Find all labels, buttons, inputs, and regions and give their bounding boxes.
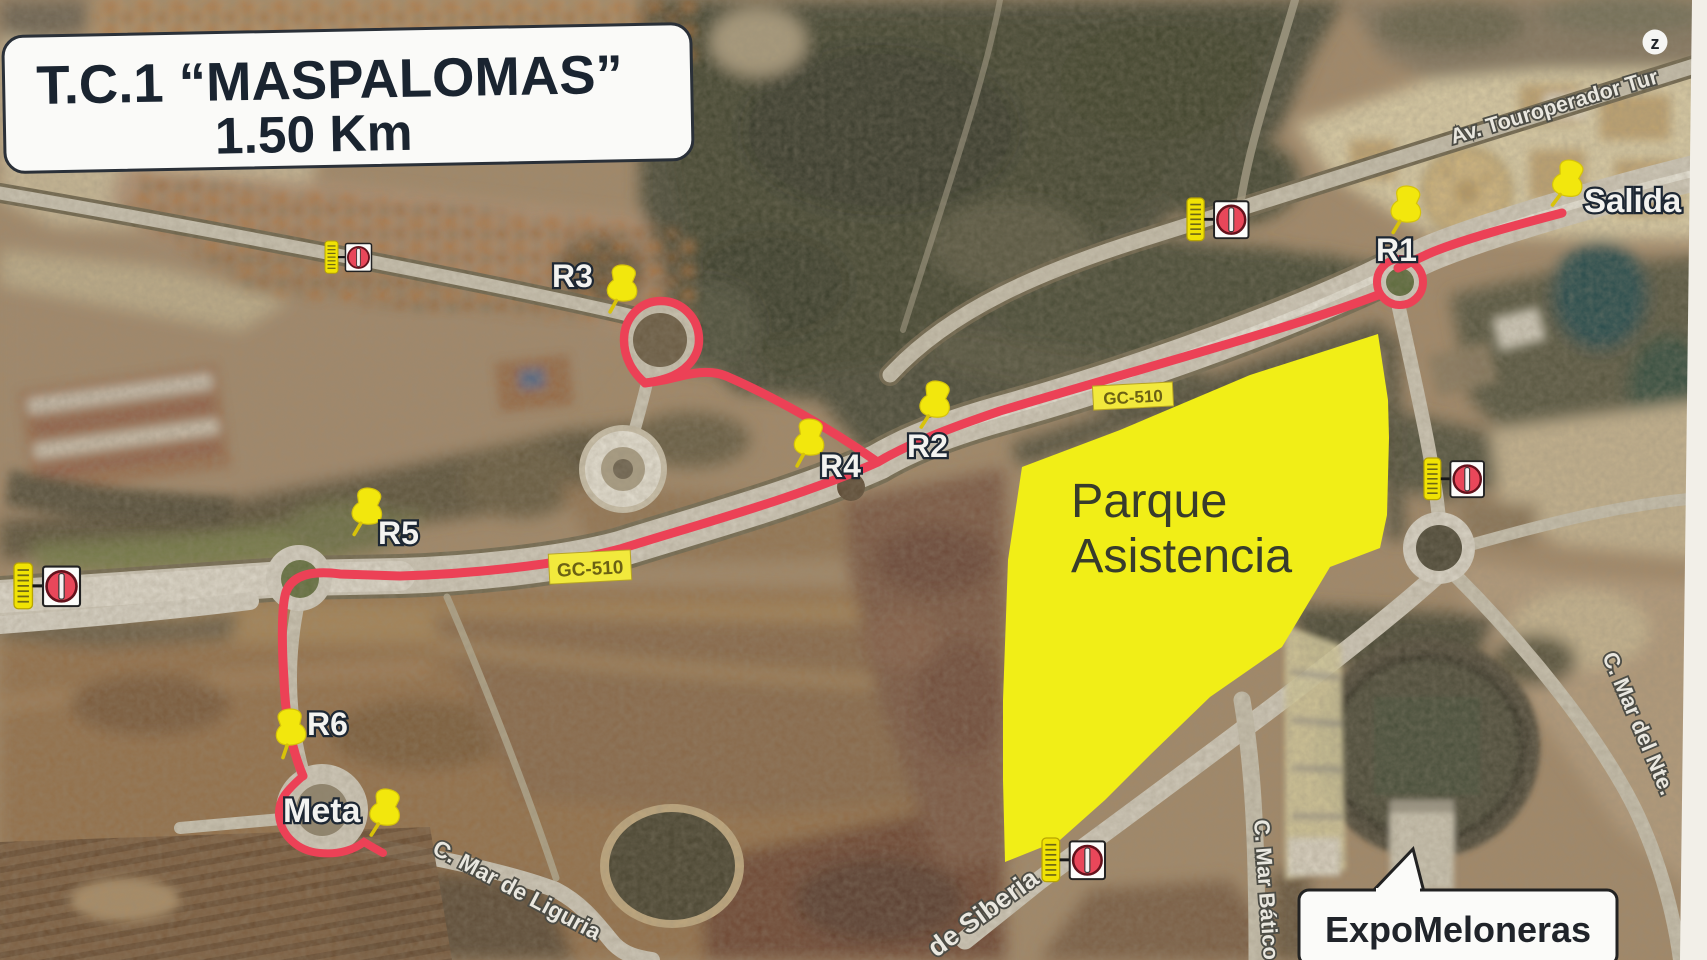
svg-text:R4: R4 — [820, 448, 861, 484]
svg-text:Meta: Meta — [283, 792, 362, 830]
svg-text:R3: R3 — [552, 258, 593, 294]
svg-text:GC-510: GC-510 — [556, 557, 624, 581]
svg-text:Asistencia: Asistencia — [1071, 529, 1292, 583]
svg-text:Salida: Salida — [1584, 182, 1682, 219]
svg-text:z: z — [1651, 33, 1660, 53]
svg-text:ExpoMeloneras: ExpoMeloneras — [1325, 909, 1591, 950]
svg-text:R5: R5 — [378, 515, 419, 551]
svg-text:GC-510: GC-510 — [1103, 386, 1163, 408]
svg-text:Parque: Parque — [1071, 474, 1227, 528]
svg-text:R1: R1 — [1376, 232, 1417, 268]
svg-text:R2: R2 — [907, 428, 948, 464]
svg-text:R6: R6 — [307, 706, 348, 742]
svg-text:1.50 Km: 1.50 Km — [214, 103, 413, 165]
